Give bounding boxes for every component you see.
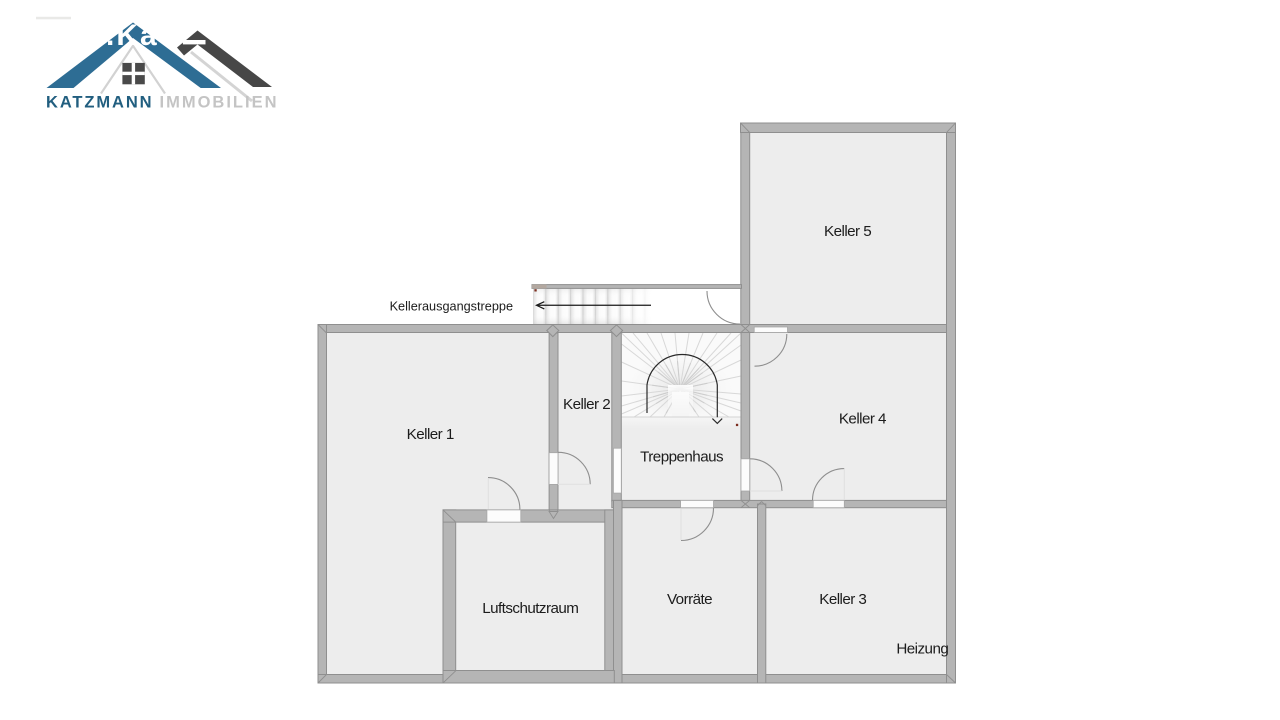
svg-text:.Ka: .Ka [106, 19, 159, 52]
svg-text:Keller 5: Keller 5 [824, 223, 871, 240]
svg-text:Vorräte: Vorräte [667, 591, 712, 608]
svg-text:IMMOBILIEN: IMMOBILIEN [160, 94, 279, 112]
svg-text:KATZMANN: KATZMANN [46, 94, 153, 112]
svg-text:Keller 1: Keller 1 [407, 426, 454, 443]
svg-text:Keller 3: Keller 3 [819, 591, 866, 608]
svg-text:Luftschutzraum: Luftschutzraum [482, 600, 578, 617]
svg-text:Kellerausgangstreppe: Kellerausgangstreppe [390, 300, 513, 314]
svg-text:Treppenhaus: Treppenhaus [640, 448, 724, 465]
svg-text:Keller 4: Keller 4 [839, 410, 886, 427]
svg-text:Heizung: Heizung [896, 641, 948, 658]
svg-text:Keller 2: Keller 2 [563, 396, 610, 413]
